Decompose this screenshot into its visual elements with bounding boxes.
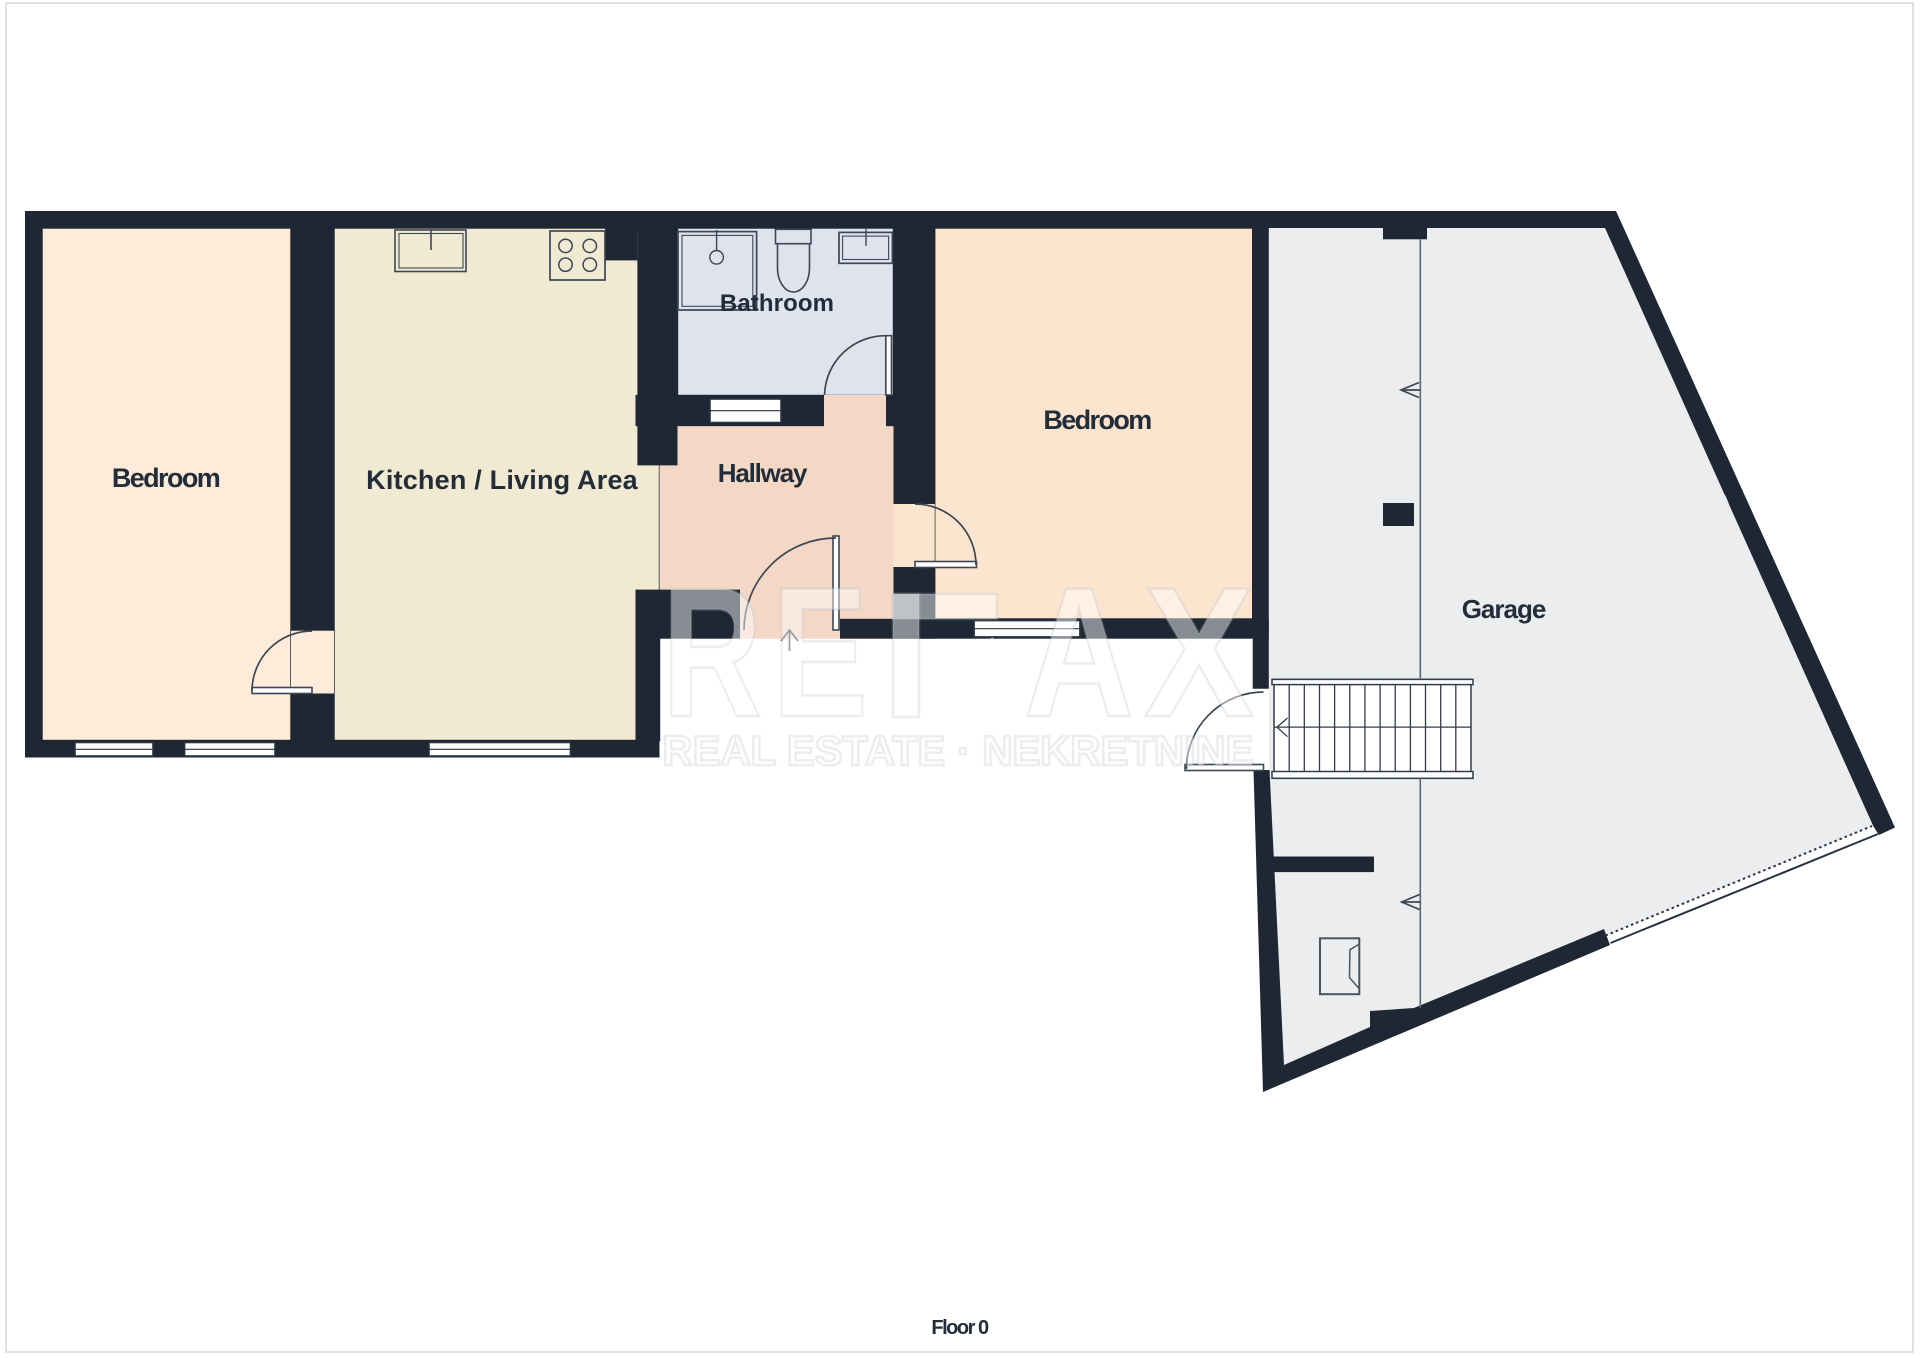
svg-text:Bedroom: Bedroom [112,463,220,493]
svg-text:X: X [1144,550,1254,756]
svg-text:E: E [772,550,868,756]
svg-text:Kitchen / Living Area: Kitchen / Living Area [366,465,639,495]
svg-text:Bathroom: Bathroom [720,290,834,317]
svg-text:REAL ESTATE · NEKRETNINE: REAL ESTATE · NEKRETNINE [663,727,1254,774]
svg-text:Floor 0: Floor 0 [931,1317,989,1339]
svg-text:R: R [662,550,762,756]
svg-text:Garage: Garage [1462,594,1546,624]
svg-text:Bedroom: Bedroom [1043,405,1151,435]
svg-text:A: A [1024,550,1134,756]
svg-text:Hallway: Hallway [718,458,808,488]
